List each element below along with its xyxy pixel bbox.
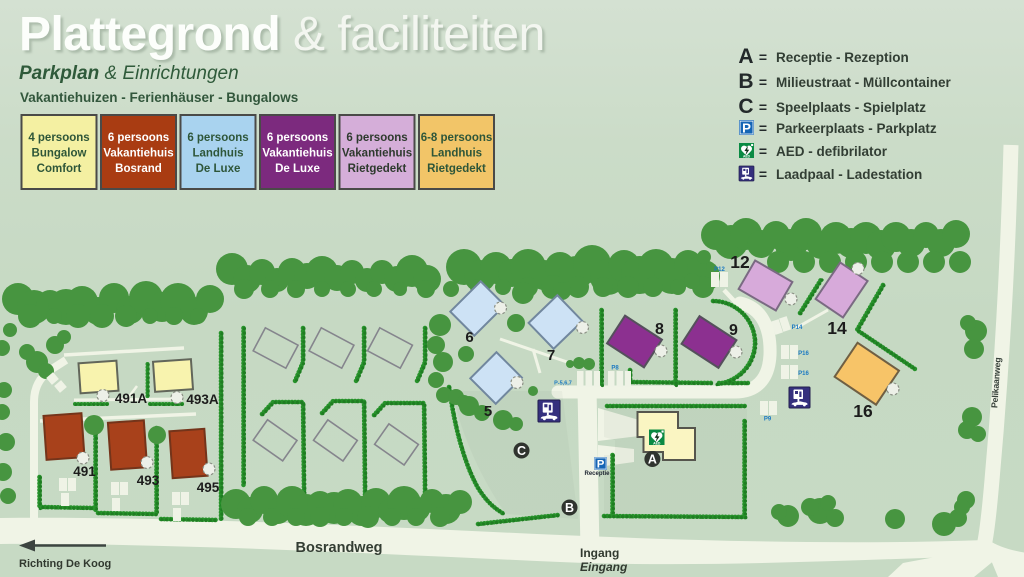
svg-text:5: 5 xyxy=(484,403,492,420)
svg-text:Vakantiehuis: Vakantiehuis xyxy=(342,148,412,160)
svg-text:Bosrandweg: Bosrandweg xyxy=(295,540,382,556)
svg-text:P16: P16 xyxy=(798,371,809,377)
svg-text:491: 491 xyxy=(73,464,96,479)
svg-text:Comfort: Comfort xyxy=(37,163,82,175)
svg-text:495: 495 xyxy=(197,480,220,495)
svg-text:Milieustraat - Müllcontainer: Milieustraat - Müllcontainer xyxy=(776,75,952,90)
svg-text:9: 9 xyxy=(729,322,738,339)
svg-text:6 persoons: 6 persoons xyxy=(267,132,328,144)
svg-text:P: P xyxy=(742,120,751,135)
svg-text:P-5,6,7: P-5,6,7 xyxy=(554,381,572,387)
svg-text:Eingang: Eingang xyxy=(580,560,628,574)
svg-text:AED: AED xyxy=(743,154,751,158)
svg-text:P12: P12 xyxy=(714,267,725,273)
svg-text:=: = xyxy=(759,166,767,182)
svg-text:C: C xyxy=(517,444,526,458)
svg-text:=: = xyxy=(759,49,767,65)
svg-text:6 persoons: 6 persoons xyxy=(108,132,169,144)
svg-text:A: A xyxy=(648,452,657,466)
svg-text:Ingang: Ingang xyxy=(580,546,619,560)
svg-text:Speelplaats - Spielplatz: Speelplaats - Spielplatz xyxy=(776,100,926,115)
svg-text:493A: 493A xyxy=(186,392,219,407)
svg-text:16: 16 xyxy=(853,401,873,421)
svg-text:Rietgedekt: Rietgedekt xyxy=(348,163,407,175)
svg-text:A: A xyxy=(738,45,753,68)
svg-text:Plattegrond & faciliteiten: Plattegrond & faciliteiten xyxy=(19,8,545,61)
svg-text:Richting De Koog: Richting De Koog xyxy=(19,558,111,570)
svg-text:Bungalow: Bungalow xyxy=(32,148,87,160)
svg-text:P9: P9 xyxy=(764,417,772,423)
svg-text:8: 8 xyxy=(655,321,664,338)
svg-text:Laadpaal - Ladestation: Laadpaal - Ladestation xyxy=(776,167,922,182)
svg-text:=: = xyxy=(759,99,767,115)
svg-text:=: = xyxy=(759,143,767,159)
svg-text:P16: P16 xyxy=(798,351,809,357)
svg-text:Landhuis: Landhuis xyxy=(192,148,243,160)
svg-text:B: B xyxy=(565,501,574,515)
svg-text:=: = xyxy=(759,74,767,90)
svg-text:6: 6 xyxy=(465,329,473,346)
svg-text:Rietgedekt: Rietgedekt xyxy=(427,163,486,175)
svg-text:6-8 persoons: 6-8 persoons xyxy=(421,132,493,144)
svg-text:7: 7 xyxy=(547,347,555,364)
svg-text:493: 493 xyxy=(137,473,160,488)
svg-text:Receptie: Receptie xyxy=(584,471,610,477)
svg-text:Receptie - Rezeption: Receptie - Rezeption xyxy=(776,50,909,65)
svg-text:12: 12 xyxy=(730,252,750,272)
svg-text:14: 14 xyxy=(827,318,847,338)
svg-text:De Luxe: De Luxe xyxy=(275,163,320,175)
svg-text:Bosrand: Bosrand xyxy=(115,163,162,175)
svg-text:Vakantiehuis: Vakantiehuis xyxy=(262,148,332,160)
svg-text:6 persoons: 6 persoons xyxy=(346,132,407,144)
svg-text:AED: AED xyxy=(653,441,661,445)
svg-text:=: = xyxy=(759,120,767,136)
svg-text:Vakantiehuizen - Ferienhäuser: Vakantiehuizen - Ferienhäuser - Bungalow… xyxy=(20,90,298,105)
svg-text:491A: 491A xyxy=(115,391,148,406)
svg-text:P8: P8 xyxy=(611,366,619,372)
svg-text:6 persoons: 6 persoons xyxy=(187,132,248,144)
svg-text:P: P xyxy=(597,459,605,471)
svg-text:De Luxe: De Luxe xyxy=(196,163,241,175)
svg-text:Parkeerplaats - Parkplatz: Parkeerplaats - Parkplatz xyxy=(776,121,937,136)
svg-text:AED - defibrilator: AED - defibrilator xyxy=(776,144,888,159)
svg-text:C: C xyxy=(738,95,753,118)
svg-text:Landhuis: Landhuis xyxy=(431,148,482,160)
svg-text:Vakantiehuis: Vakantiehuis xyxy=(103,148,173,160)
svg-text:4 persoons: 4 persoons xyxy=(28,132,89,144)
svg-text:P14: P14 xyxy=(792,325,803,331)
svg-text:B: B xyxy=(738,70,753,93)
svg-text:Parkplan & Einrichtungen: Parkplan & Einrichtungen xyxy=(19,63,239,84)
